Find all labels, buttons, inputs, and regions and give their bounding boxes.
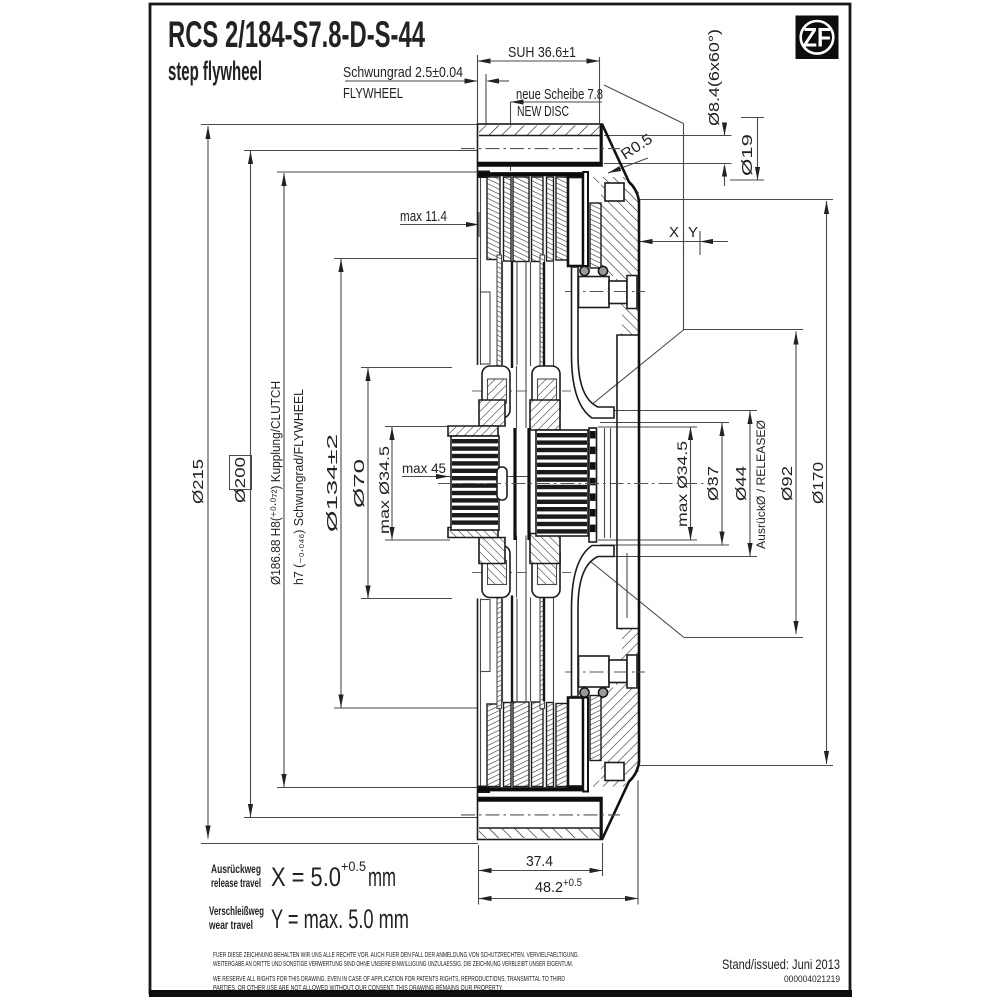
- svg-text:Ø186.88 H8(⁺⁰⋅⁰⁷²) Kupplung/CL: Ø186.88 H8(⁺⁰⋅⁰⁷²) Kupplung/CLUTCH: [268, 381, 283, 585]
- svg-text:Ø170: Ø170: [810, 462, 827, 504]
- svg-text:max Ø34.5: max Ø34.5: [376, 446, 392, 534]
- svg-text:release travel: release travel: [211, 876, 261, 890]
- svg-text:+0.5: +0.5: [341, 859, 366, 874]
- svg-text:NEW DISC: NEW DISC: [517, 103, 569, 120]
- svg-text:RCS 2/184-S7.8-D-S-44: RCS 2/184-S7.8-D-S-44: [168, 14, 425, 55]
- svg-text:+0.5: +0.5: [563, 877, 582, 889]
- svg-text:max 11.4: max 11.4: [400, 208, 447, 225]
- svg-text:Y = max. 5.0 mm: Y = max. 5.0 mm: [271, 904, 409, 934]
- svg-text:step flywheel: step flywheel: [168, 56, 262, 86]
- svg-text:000004021219: 000004021219: [784, 974, 840, 985]
- svg-text:Ø8.4(6x60°): Ø8.4(6x60°): [706, 29, 723, 126]
- svg-text:X = 5.0: X = 5.0: [271, 862, 341, 892]
- svg-text:ZF: ZF: [803, 23, 831, 53]
- svg-text:Ø44: Ø44: [733, 466, 750, 501]
- svg-text:AusrückØ / RELEASEØ: AusrückØ / RELEASEØ: [754, 420, 768, 549]
- svg-text:neue Scheibe 7.8: neue Scheibe 7.8: [516, 86, 603, 103]
- svg-text:Ausrückweg: Ausrückweg: [211, 862, 261, 876]
- svg-text:Ø215: Ø215: [190, 459, 207, 504]
- svg-text:PARTIES, OR OTHER USE ARE NOT: PARTIES, OR OTHER USE ARE NOT ALLOWED WI…: [213, 985, 503, 992]
- svg-text:X: X: [669, 224, 679, 241]
- svg-text:37.4: 37.4: [526, 853, 553, 870]
- svg-text:max 45: max 45: [402, 460, 446, 476]
- svg-text:Ø134±2: Ø134±2: [324, 434, 341, 532]
- svg-text:h7 (₋₀.₀₄₆) Schwungrad/FLYWHEE: h7 (₋₀.₀₄₆) Schwungrad/FLYWHEEL: [291, 389, 306, 585]
- svg-text:mm: mm: [368, 862, 396, 892]
- svg-text:Ø70: Ø70: [351, 459, 368, 508]
- svg-text:Y: Y: [688, 224, 698, 241]
- svg-text:Ø92: Ø92: [779, 466, 796, 501]
- svg-text:Ø19: Ø19: [739, 134, 756, 176]
- svg-text:Schwungrad 2.5±0.04: Schwungrad 2.5±0.04: [343, 64, 463, 81]
- svg-text:Stand/issued: Juni 2013: Stand/issued: Juni 2013: [722, 956, 840, 972]
- svg-text:WE RESERVE ALL RIGHTS FOR THIS: WE RESERVE ALL RIGHTS FOR THIS DRAWING. …: [213, 976, 565, 983]
- svg-text:wear travel: wear travel: [208, 918, 253, 932]
- svg-text:48.2: 48.2: [535, 879, 563, 896]
- svg-text:FLYWHEEL: FLYWHEEL: [343, 85, 403, 102]
- svg-text:WEITERGABE AN DRITTE UND SONST: WEITERGABE AN DRITTE UND SONSTIGE VERWER…: [213, 961, 573, 968]
- svg-text:FUER DIESE ZEICHNUNG BEHALTEN: FUER DIESE ZEICHNUNG BEHALTEN WIR UNS AL…: [213, 952, 579, 959]
- svg-text:Ø200: Ø200: [232, 457, 249, 503]
- svg-text:SUH 36.6±1: SUH 36.6±1: [508, 44, 576, 61]
- svg-text:Verschleißweg: Verschleißweg: [209, 904, 264, 918]
